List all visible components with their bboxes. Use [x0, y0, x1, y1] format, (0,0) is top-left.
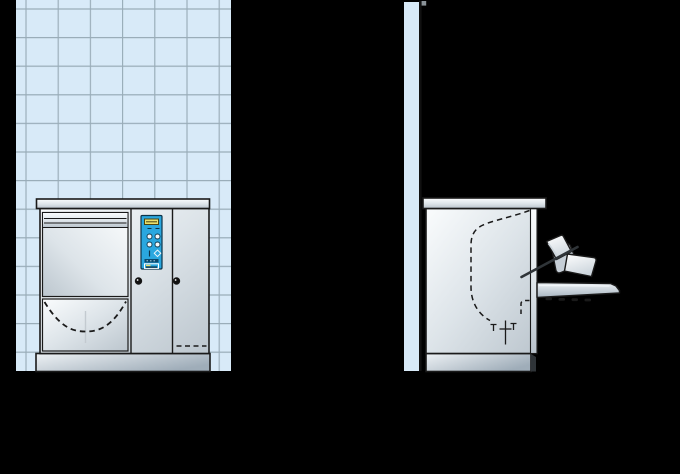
tray-back	[565, 254, 597, 277]
roller	[559, 298, 566, 301]
door-knob-right	[173, 278, 180, 285]
flap-highlight	[539, 286, 610, 287]
door-rollers	[546, 298, 592, 302]
program-button	[155, 234, 160, 239]
plinth	[36, 354, 210, 372]
logo-badge-yellow-mark	[146, 265, 151, 266]
front-view	[16, 0, 231, 372]
open-door-flap	[537, 283, 620, 302]
dishwasher-installation-diagram	[0, 0, 680, 474]
wall-edge-notch	[422, 1, 427, 6]
side-view	[404, 1, 620, 372]
door-knob-left-highlight	[137, 279, 139, 281]
worktop	[37, 199, 210, 209]
roller	[546, 298, 553, 301]
roller	[572, 298, 579, 301]
flap-surface	[537, 283, 620, 298]
tank-panel	[43, 299, 129, 351]
program-button	[147, 234, 152, 239]
machine-body	[426, 209, 537, 354]
control-panel	[141, 216, 162, 270]
worktop	[423, 198, 546, 209]
door-knob-right-highlight	[175, 279, 177, 281]
roller	[585, 299, 592, 302]
wall-edge-line	[419, 1, 422, 371]
program-button	[155, 242, 160, 247]
logo-badge-dark-mark	[146, 266, 157, 267]
door-knob-left	[135, 278, 142, 285]
diagram-stage	[0, 0, 680, 474]
door-edge-strip	[531, 209, 538, 354]
vent-band	[43, 213, 129, 228]
plinth-side-shadow	[531, 354, 536, 372]
hood-door	[43, 213, 129, 297]
program-button	[147, 242, 152, 247]
plinth	[426, 354, 531, 372]
wall-strip	[404, 2, 419, 371]
